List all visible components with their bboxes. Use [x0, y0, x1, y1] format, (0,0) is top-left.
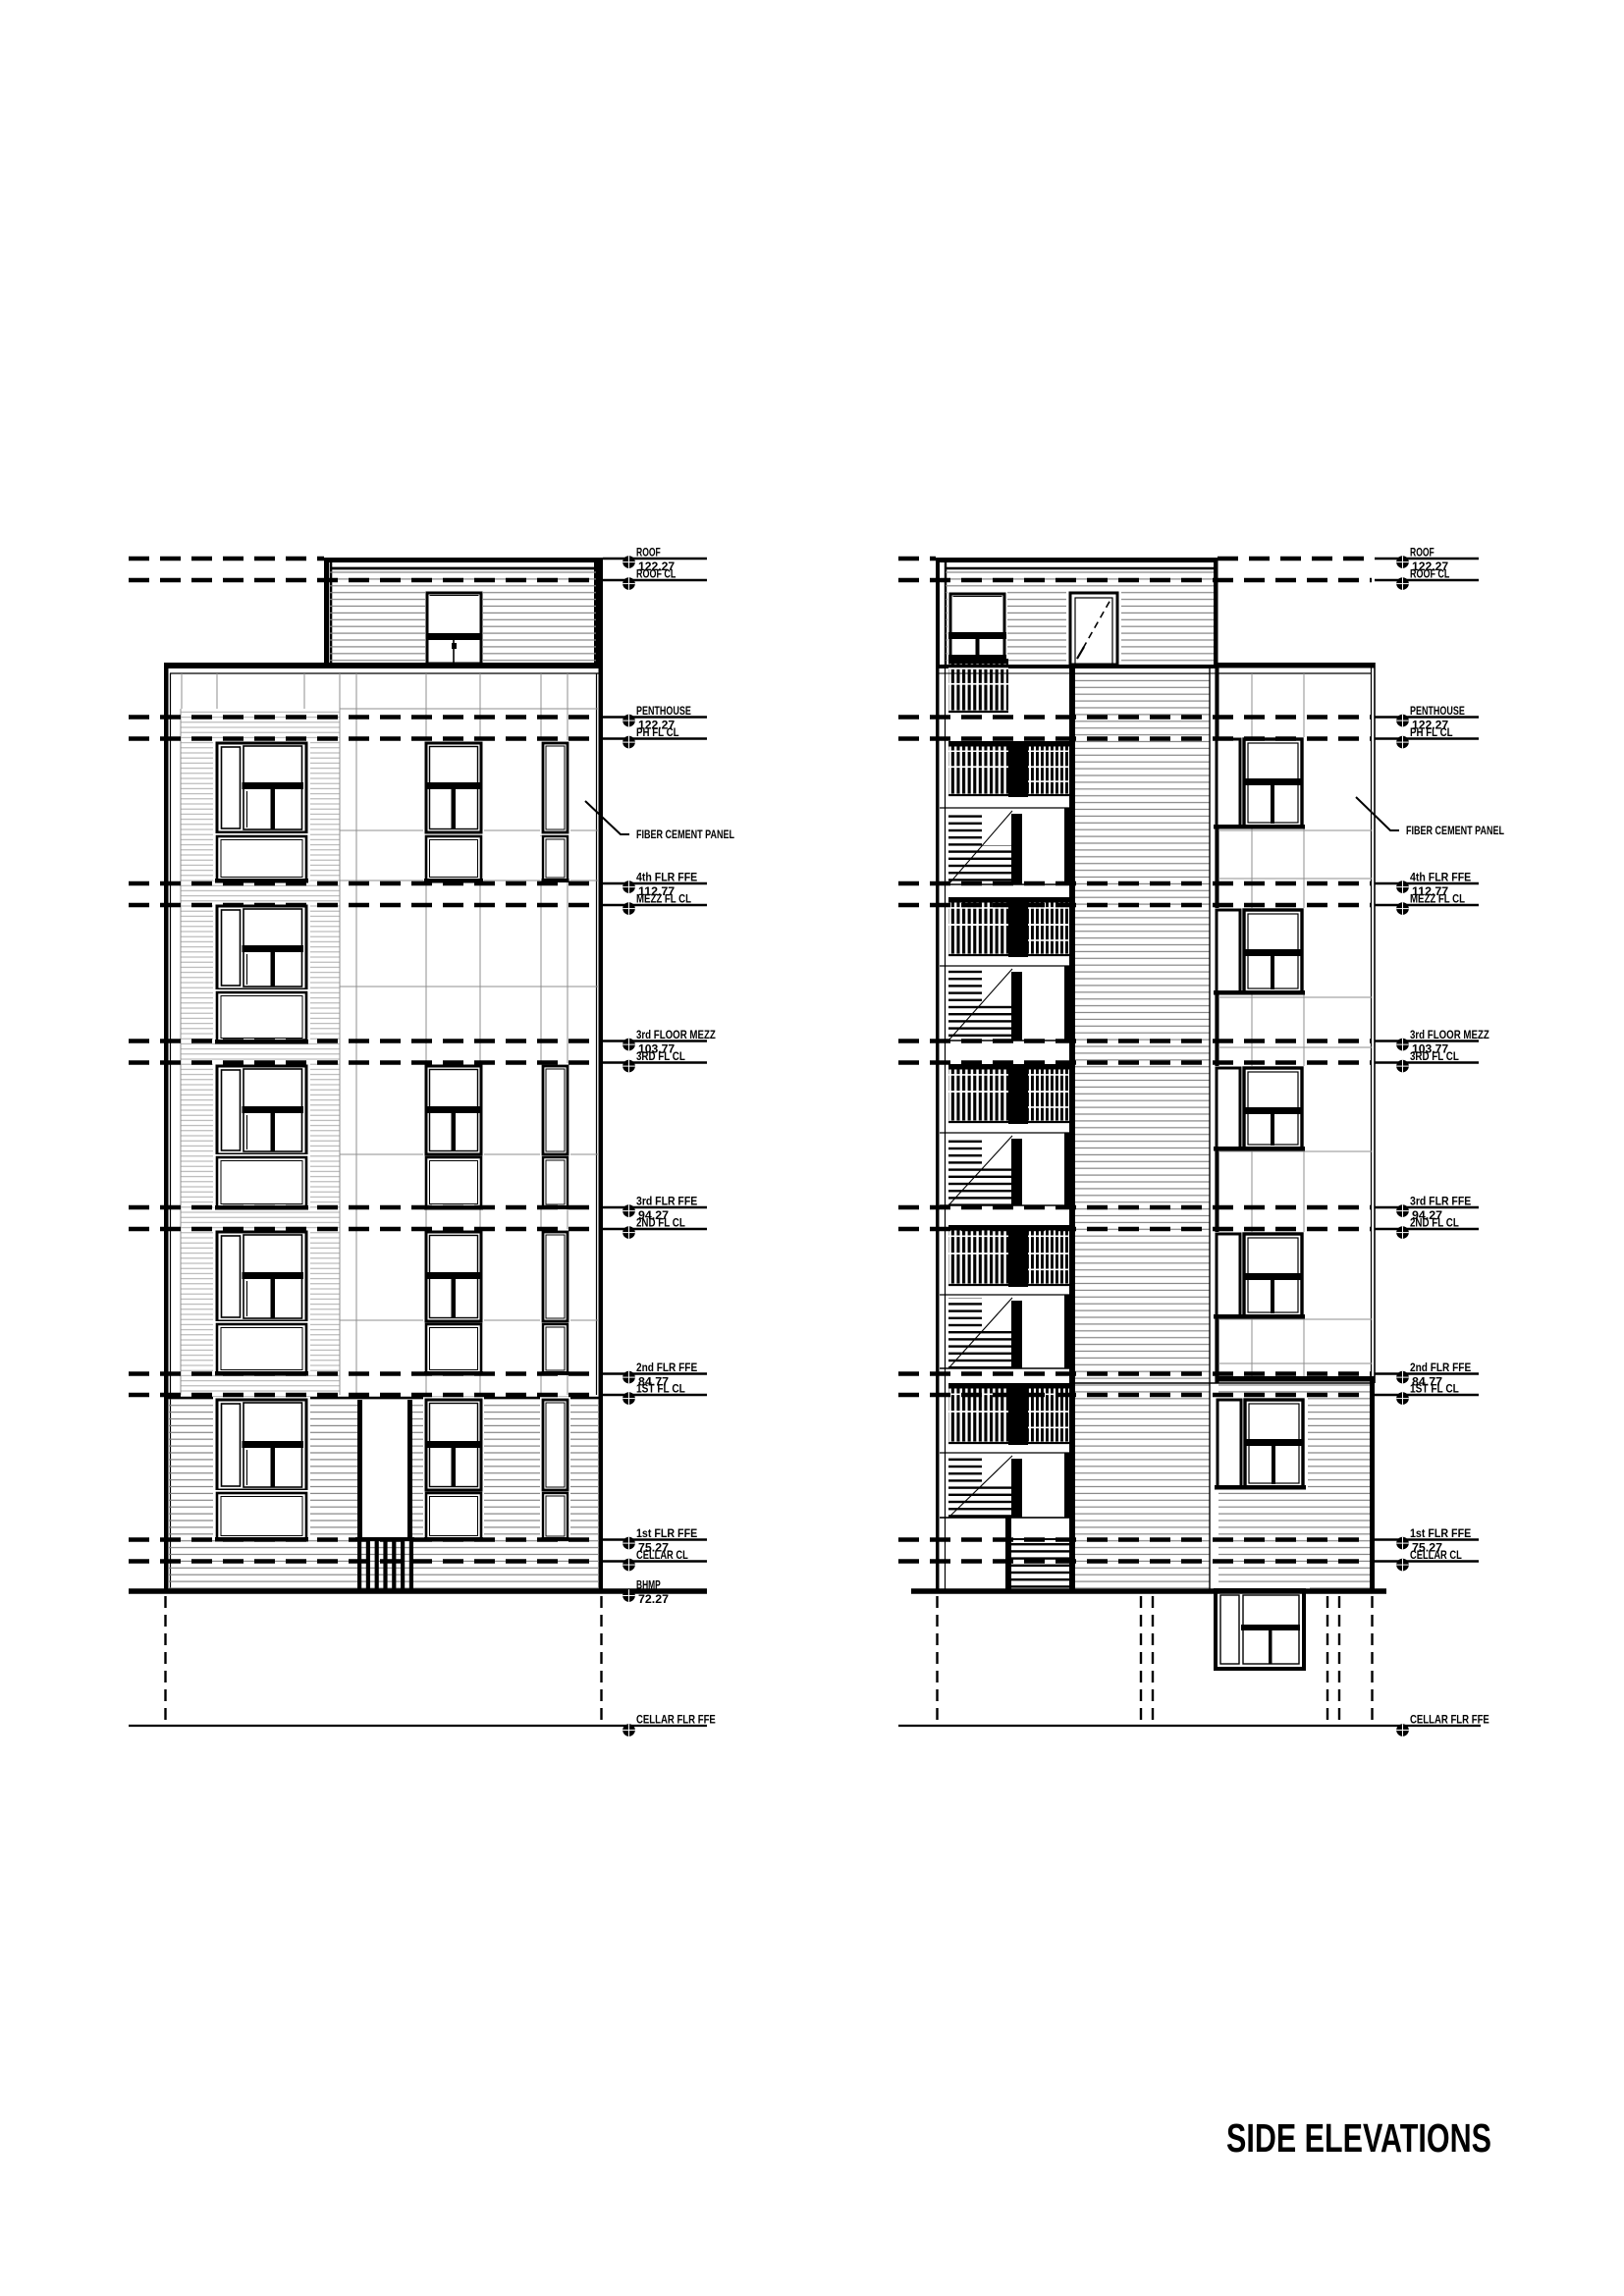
svg-text:ROOF: ROOF	[636, 546, 661, 560]
svg-text:3rd FLOOR MEZZ: 3rd FLOOR MEZZ	[636, 1028, 716, 1041]
svg-text:ROOF CL: ROOF CL	[636, 567, 676, 581]
svg-text:1st FLR FFE: 1st FLR FFE	[636, 1526, 697, 1540]
svg-text:4th FLR FFE: 4th FLR FFE	[636, 871, 697, 884]
svg-text:2nd FLR FFE: 2nd FLR FFE	[1410, 1361, 1471, 1374]
svg-text:ROOF CL: ROOF CL	[1410, 567, 1449, 581]
svg-text:BHMP: BHMP	[636, 1578, 661, 1592]
svg-text:CELLAR CL: CELLAR CL	[636, 1548, 688, 1562]
svg-text:3RD FL CL: 3RD FL CL	[636, 1049, 685, 1063]
svg-text:PH FL CL: PH FL CL	[1410, 725, 1453, 739]
svg-text:3rd FLR FFE: 3rd FLR FFE	[636, 1195, 697, 1208]
svg-text:CELLAR FLR FFE: CELLAR FLR FFE	[636, 1713, 716, 1727]
svg-text:4th FLR FFE: 4th FLR FFE	[1410, 871, 1471, 884]
svg-text:2nd FLR FFE: 2nd FLR FFE	[636, 1361, 697, 1374]
svg-text:PENTHOUSE: PENTHOUSE	[636, 704, 691, 718]
svg-text:MEZZ FL CL: MEZZ FL CL	[636, 892, 691, 906]
svg-text:PH FL CL: PH FL CL	[636, 725, 679, 739]
svg-text:SIDE ELEVATIONS: SIDE ELEVATIONS	[1226, 2115, 1491, 2161]
svg-text:CELLAR FLR FFE: CELLAR FLR FFE	[1410, 1713, 1489, 1727]
svg-text:FIBER CEMENT PANEL: FIBER CEMENT PANEL	[636, 829, 734, 841]
svg-text:CELLAR CL: CELLAR CL	[1410, 1548, 1462, 1562]
svg-text:1ST FL CL: 1ST FL CL	[636, 1382, 685, 1396]
svg-text:MEZZ FL CL: MEZZ FL CL	[1410, 892, 1465, 906]
svg-text:3rd FLOOR MEZZ: 3rd FLOOR MEZZ	[1410, 1028, 1489, 1041]
svg-text:1st FLR FFE: 1st FLR FFE	[1410, 1526, 1471, 1540]
svg-text:3RD FL CL: 3RD FL CL	[1410, 1049, 1459, 1063]
svg-text:FIBER CEMENT PANEL: FIBER CEMENT PANEL	[1406, 826, 1504, 837]
svg-text:1ST FL CL: 1ST FL CL	[1410, 1382, 1459, 1396]
svg-text:72.27: 72.27	[638, 1592, 669, 1606]
svg-text:ROOF: ROOF	[1410, 546, 1435, 560]
svg-text:2ND FL CL: 2ND FL CL	[636, 1216, 685, 1230]
svg-text:PENTHOUSE: PENTHOUSE	[1410, 704, 1465, 718]
svg-text:3rd FLR FFE: 3rd FLR FFE	[1410, 1195, 1471, 1208]
svg-text:2ND FL CL: 2ND FL CL	[1410, 1216, 1459, 1230]
